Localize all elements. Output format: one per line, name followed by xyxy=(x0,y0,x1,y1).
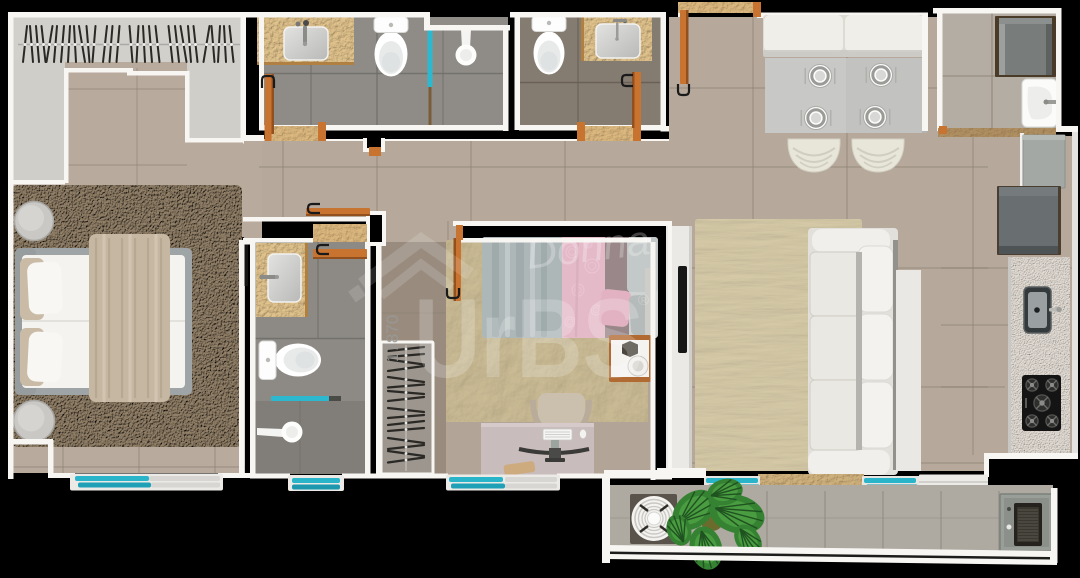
svg-text:17870: 17870 xyxy=(383,315,402,362)
svg-text:UrBS: UrBS xyxy=(414,276,644,401)
svg-text:®: ® xyxy=(638,292,649,309)
